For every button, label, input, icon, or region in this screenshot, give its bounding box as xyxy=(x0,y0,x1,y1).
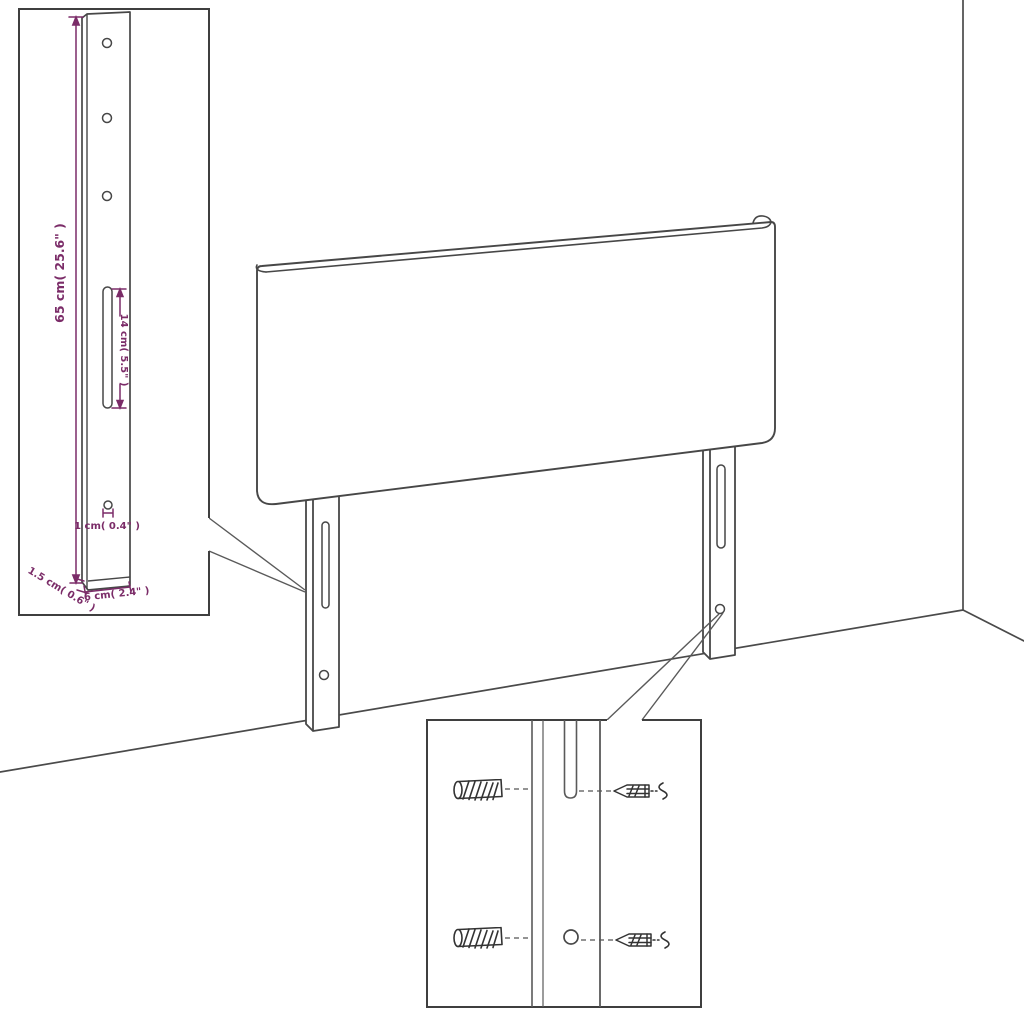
floor-line-right xyxy=(963,610,1024,641)
right-leg-slot xyxy=(717,465,725,548)
left-leg xyxy=(306,466,339,731)
dim-14cm-label: 14 cm( 5.5" ) xyxy=(118,314,129,387)
callout-wedge-left xyxy=(209,518,305,592)
right-leg-hole xyxy=(716,605,725,614)
assembly-diagram: 65 cm( 25.6" ) 14 cm( 5.5" ) 1 cm( 0.4" … xyxy=(0,0,1024,1024)
dim-65cm-label: 65 cm( 25.6" ) xyxy=(52,223,67,323)
headboard-panel xyxy=(256,216,775,504)
leg-detail-inset: 65 cm( 25.6" ) 14 cm( 5.5" ) 1 cm( 0.4" … xyxy=(19,9,209,615)
bracket-slot xyxy=(103,287,112,408)
bracket-drawing xyxy=(82,12,130,590)
hardware-inset xyxy=(427,720,701,1007)
bracket-hole-3 xyxy=(103,192,112,201)
bracket-hole-1 xyxy=(103,39,112,48)
diagram-svg: 65 cm( 25.6" ) 14 cm( 5.5" ) 1 cm( 0.4" … xyxy=(0,0,1024,1024)
left-leg-hole xyxy=(320,671,329,680)
bracket-small-hole xyxy=(104,501,112,509)
left-leg-slot xyxy=(322,522,329,608)
dim-1cm-label: 1 cm( 0.4" ) xyxy=(74,521,140,532)
bracket-hole-2 xyxy=(103,114,112,123)
headboard-panel-face xyxy=(257,222,775,504)
